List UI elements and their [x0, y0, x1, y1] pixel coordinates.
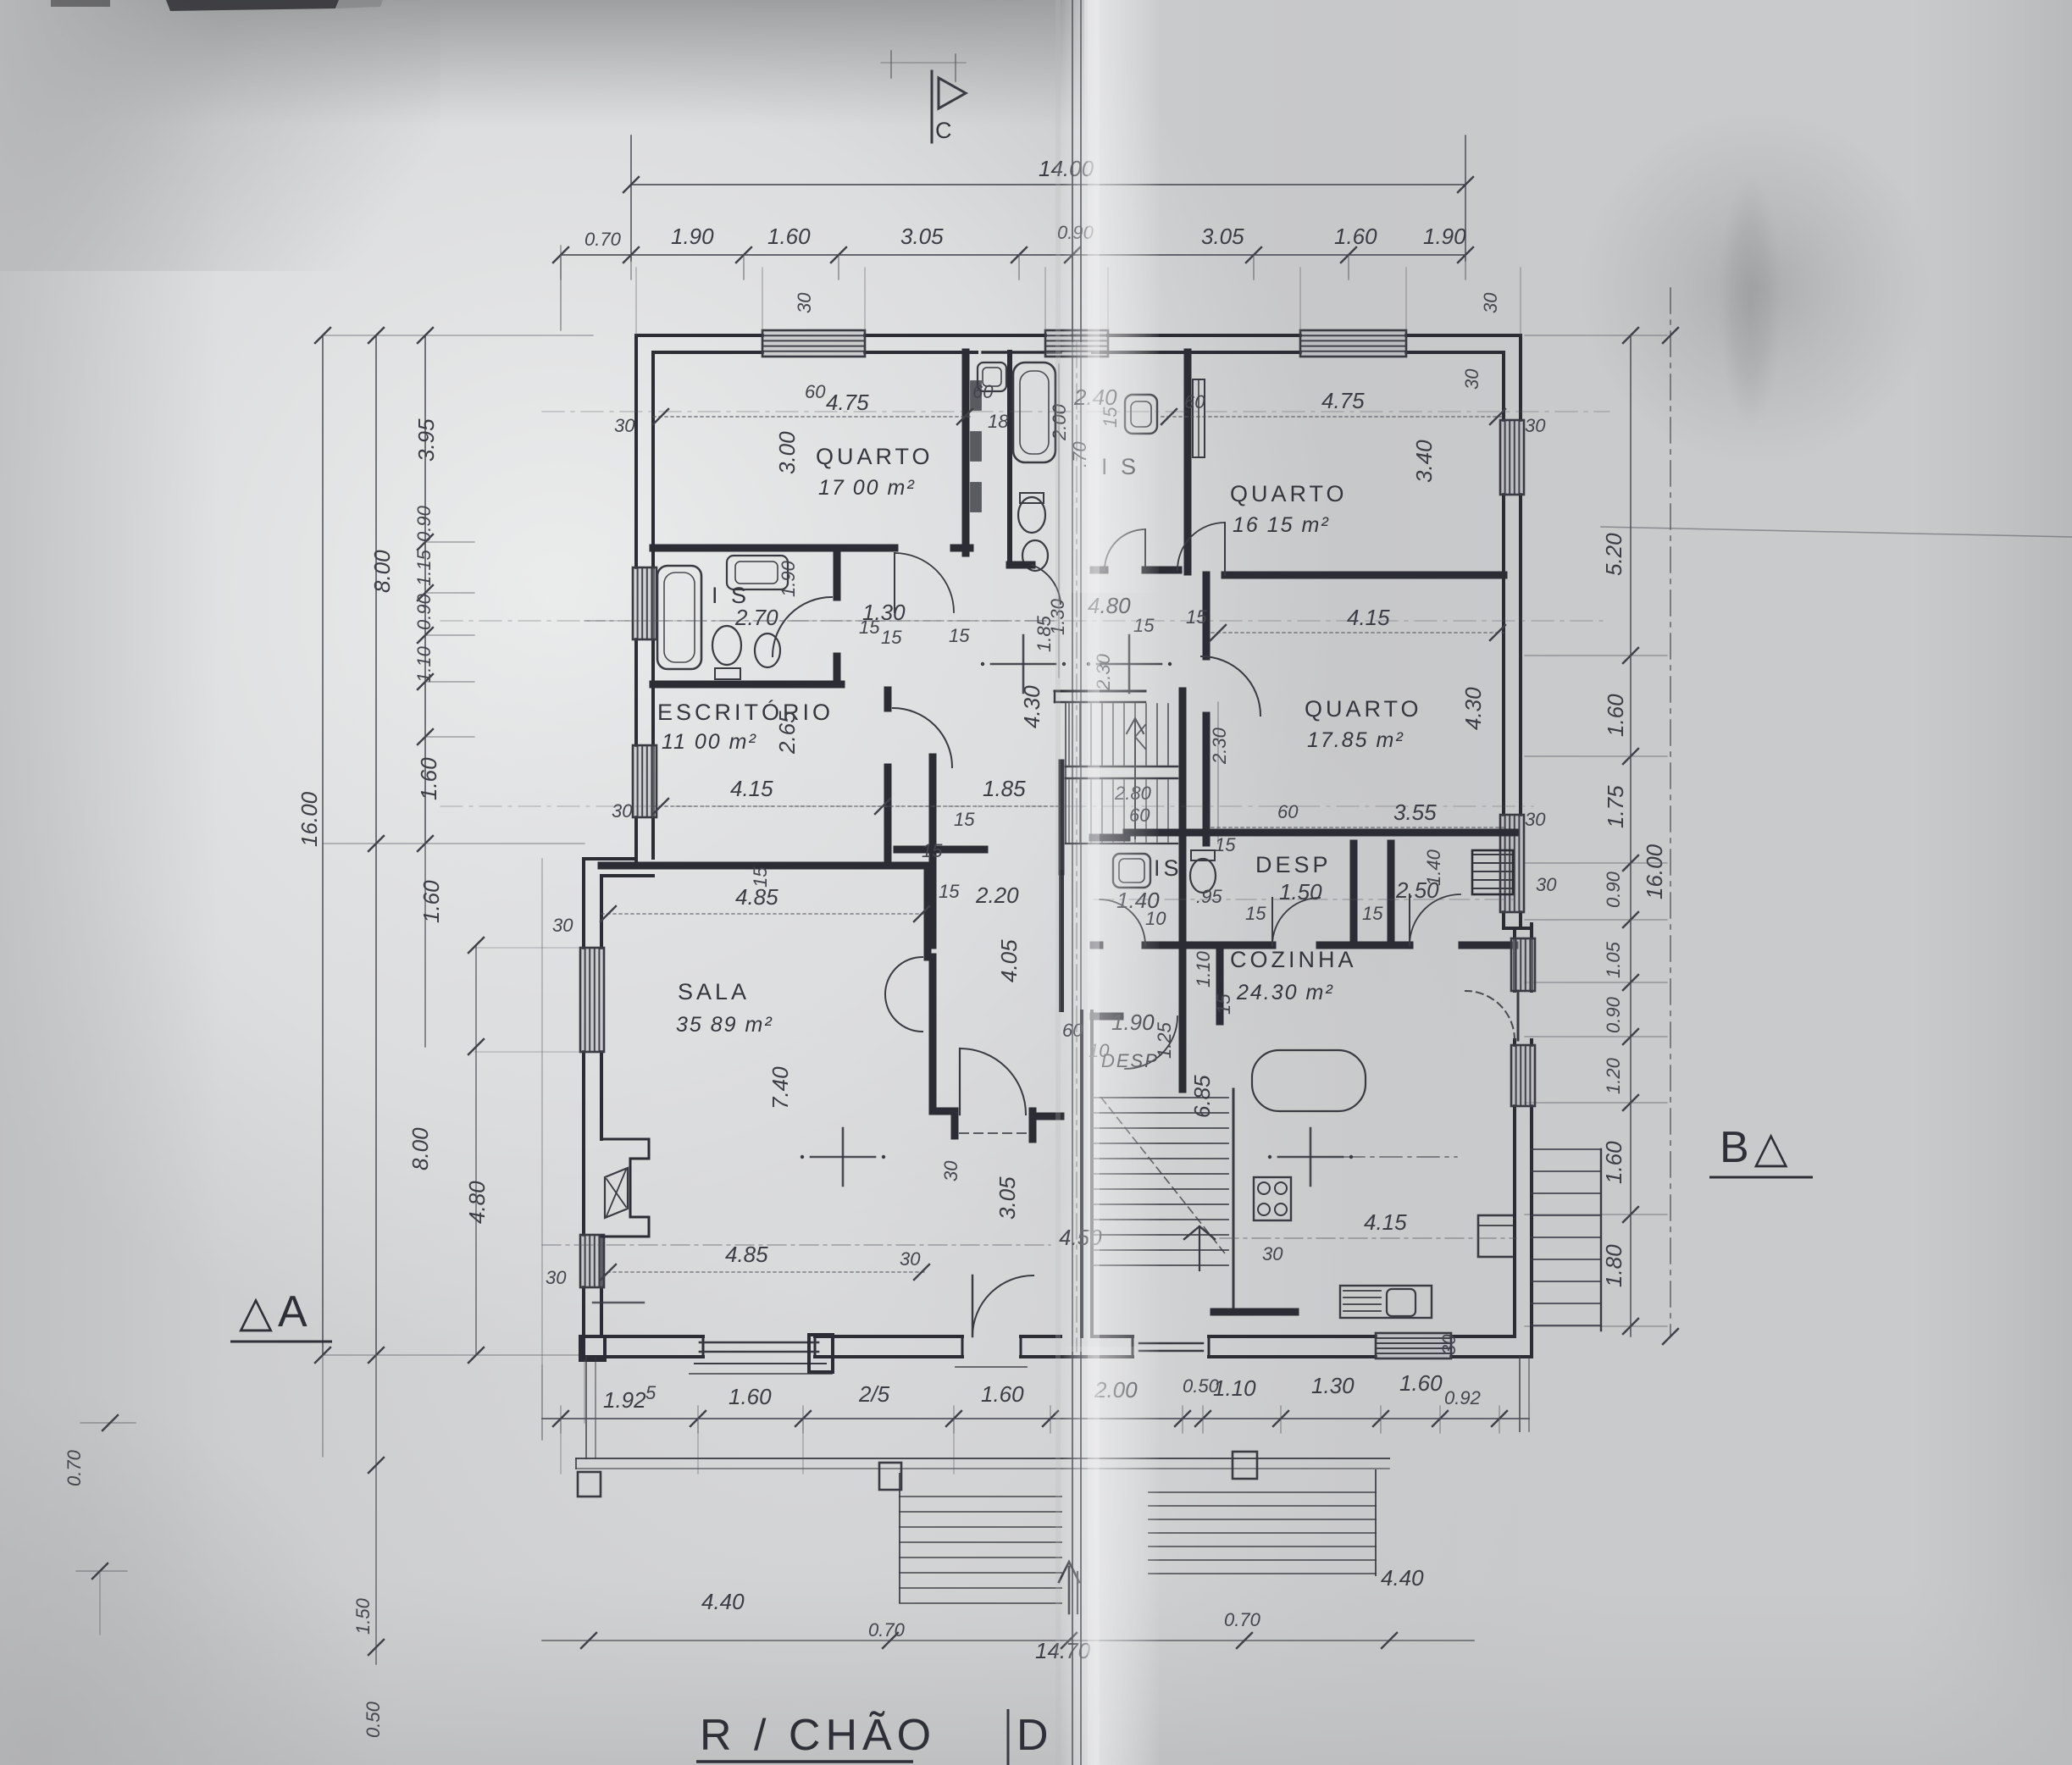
svg-text:0.70: 0.70	[64, 1449, 85, 1486]
svg-text:8.00: 8.00	[407, 1127, 433, 1170]
svg-text:1.60: 1.60	[1601, 1141, 1626, 1184]
svg-text:4.30: 4.30	[1460, 687, 1486, 730]
svg-text:0.92: 0.92	[1444, 1387, 1481, 1408]
svg-text:30: 30	[546, 1267, 567, 1288]
svg-text:30: 30	[1536, 874, 1557, 895]
svg-text:3.00: 3.00	[774, 431, 800, 474]
svg-text:1.60: 1.60	[416, 757, 441, 800]
svg-text:QUARTO: QUARTO	[1230, 481, 1348, 506]
svg-text:2.65: 2.65	[774, 711, 800, 755]
svg-text:1.80: 1.80	[1601, 1244, 1626, 1287]
svg-text:17.85 m²: 17.85 m²	[1307, 728, 1404, 752]
svg-text:1.30: 1.30	[1311, 1373, 1355, 1398]
svg-text:1.40: 1.40	[1423, 849, 1444, 886]
svg-text:△A: △A	[239, 1287, 313, 1336]
svg-text:SALA: SALA	[678, 979, 750, 1004]
svg-text:16.00: 16.00	[1642, 844, 1667, 899]
svg-text:4.80: 4.80	[464, 1181, 490, 1224]
svg-text:2.30: 2.30	[1209, 727, 1230, 765]
svg-text:2.70: 2.70	[734, 605, 778, 630]
svg-text:16 15 m²: 16 15 m²	[1233, 513, 1330, 537]
svg-text:3.05: 3.05	[1201, 224, 1244, 249]
svg-text:15: 15	[750, 866, 771, 888]
svg-text:3.05: 3.05	[900, 224, 944, 249]
svg-text:30: 30	[1461, 368, 1482, 390]
svg-text:1.60: 1.60	[1603, 694, 1628, 737]
svg-text:1.15: 1.15	[413, 549, 435, 586]
svg-text:30: 30	[1480, 292, 1501, 313]
svg-text:60: 60	[972, 381, 994, 402]
svg-text:15: 15	[859, 617, 880, 638]
svg-text:QUARTO: QUARTO	[1305, 696, 1422, 722]
svg-text:15: 15	[939, 881, 960, 902]
svg-text:15: 15	[922, 840, 943, 861]
svg-text:3.05: 3.05	[994, 1176, 1020, 1220]
svg-text:1.10: 1.10	[1193, 950, 1214, 988]
svg-text:0.70: 0.70	[584, 229, 622, 250]
svg-text:0.90: 0.90	[413, 593, 435, 630]
svg-text:15: 15	[954, 809, 975, 830]
svg-text:30: 30	[614, 415, 635, 436]
svg-text:15: 15	[949, 625, 970, 646]
svg-text:1.90: 1.90	[671, 224, 714, 249]
svg-text:C: C	[935, 118, 956, 143]
svg-text:1.60: 1.60	[729, 1384, 772, 1409]
svg-text:15: 15	[1186, 606, 1207, 628]
svg-text:QUARTO: QUARTO	[816, 444, 934, 469]
svg-text:16.00: 16.00	[296, 791, 322, 847]
svg-text:15: 15	[1213, 993, 1234, 1015]
svg-text:3.40: 3.40	[1411, 440, 1437, 483]
svg-text:R / CHÃO: R / CHÃO	[700, 1711, 936, 1760]
svg-text:4.40: 4.40	[701, 1589, 745, 1614]
svg-text:1.50: 1.50	[1279, 879, 1322, 905]
svg-text:COZINHA: COZINHA	[1230, 947, 1357, 972]
svg-text:0.50: 0.50	[363, 1701, 384, 1738]
svg-text:30: 30	[1525, 415, 1546, 436]
svg-text:5: 5	[645, 1382, 657, 1403]
svg-text:30: 30	[940, 1160, 961, 1181]
svg-text:8.00: 8.00	[369, 550, 395, 593]
svg-text:4.15: 4.15	[1364, 1209, 1407, 1235]
svg-text:4.05: 4.05	[996, 939, 1022, 982]
svg-text:1.20: 1.20	[1603, 1057, 1624, 1094]
svg-text:6.85: 6.85	[1189, 1075, 1215, 1118]
svg-text:D: D	[1017, 1711, 1054, 1760]
svg-text:18: 18	[988, 411, 1009, 432]
svg-text:3.95: 3.95	[413, 418, 439, 462]
svg-text:1.10: 1.10	[413, 645, 435, 683]
svg-text:0.90: 0.90	[1603, 871, 1624, 908]
svg-text:1.85: 1.85	[983, 776, 1026, 801]
svg-text:60: 60	[1277, 801, 1299, 822]
svg-text:4.75: 4.75	[1321, 388, 1365, 413]
svg-text:17 00 m²: 17 00 m²	[818, 476, 916, 500]
svg-text:24.30 m²: 24.30 m²	[1236, 981, 1334, 1004]
svg-text:30: 30	[612, 800, 633, 822]
svg-text:15: 15	[1362, 903, 1383, 924]
svg-text:15: 15	[1245, 903, 1266, 924]
svg-text:1.60: 1.60	[767, 224, 811, 249]
svg-text:60: 60	[1184, 391, 1205, 412]
svg-text:60: 60	[805, 381, 826, 402]
svg-text:1.60: 1.60	[1399, 1370, 1443, 1396]
svg-text:B△: B△	[1720, 1123, 1793, 1172]
svg-text:30: 30	[552, 915, 573, 936]
svg-text:15: 15	[881, 627, 902, 648]
svg-text:30: 30	[1262, 1243, 1283, 1264]
svg-text:3.55: 3.55	[1393, 800, 1437, 825]
svg-text:1.75: 1.75	[1603, 785, 1628, 828]
svg-text:35 89 m²: 35 89 m²	[676, 1013, 773, 1037]
svg-text:30: 30	[900, 1248, 921, 1270]
svg-text:0.90: 0.90	[413, 505, 435, 542]
svg-text:1.60: 1.60	[418, 880, 444, 923]
svg-text:5.20: 5.20	[1601, 533, 1626, 576]
svg-text:0.90: 0.90	[1603, 996, 1624, 1033]
svg-text:4.15: 4.15	[1347, 605, 1390, 630]
svg-text:1.50: 1.50	[352, 1597, 374, 1635]
svg-text:1.60: 1.60	[1334, 224, 1377, 249]
svg-text:1.10: 1.10	[1213, 1375, 1256, 1401]
svg-text:1.90: 1.90	[778, 560, 799, 597]
svg-text:2/5: 2/5	[858, 1381, 890, 1407]
svg-text:7.40: 7.40	[767, 1066, 793, 1109]
svg-text:DESP: DESP	[1255, 852, 1332, 877]
svg-text:4.15: 4.15	[730, 776, 773, 801]
svg-text:11 00 m²: 11 00 m²	[662, 730, 757, 754]
svg-text:4.40: 4.40	[1381, 1565, 1424, 1591]
svg-text:1.05: 1.05	[1603, 941, 1624, 978]
svg-text:30: 30	[1438, 1334, 1460, 1355]
svg-text:1.90: 1.90	[1423, 224, 1466, 249]
svg-text:ESCRITÓRIO: ESCRITÓRIO	[657, 699, 834, 725]
svg-text:15: 15	[1215, 834, 1236, 855]
svg-text:1.92: 1.92	[603, 1387, 646, 1413]
svg-text:2.20: 2.20	[975, 882, 1019, 908]
svg-text:0.70: 0.70	[1224, 1609, 1261, 1630]
svg-text:0.70: 0.70	[868, 1619, 906, 1641]
svg-text:30: 30	[1525, 809, 1546, 830]
svg-text:30: 30	[794, 292, 815, 313]
svg-text:.95: .95	[1196, 886, 1222, 907]
svg-text:1.60: 1.60	[981, 1381, 1024, 1407]
